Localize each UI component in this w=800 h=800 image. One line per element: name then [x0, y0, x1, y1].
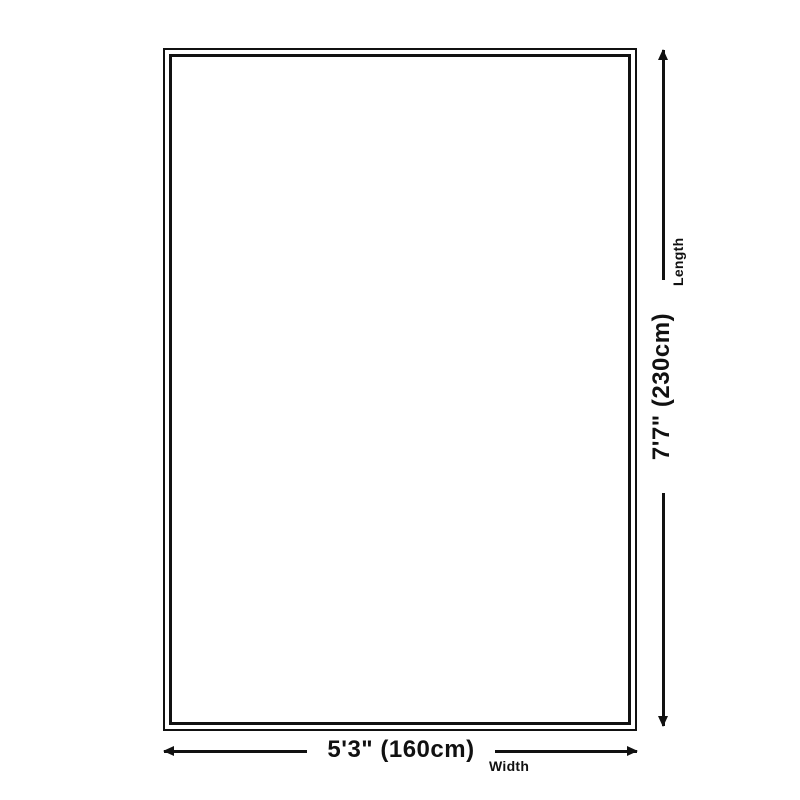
length-arrow-bottom-segment — [662, 493, 665, 726]
width-value: 5'3" (160cm) — [327, 738, 474, 764]
width-arrow-left-segment — [164, 750, 307, 753]
width-dimension: 5'3" (160cm) Width — [164, 736, 637, 766]
width-arrow-right-segment: Width — [495, 750, 637, 753]
rug-outline — [163, 48, 637, 731]
arrow-right-icon — [627, 746, 638, 756]
rug-inner-outline — [169, 54, 631, 725]
length-value: 7'7" (230cm) — [650, 313, 676, 460]
arrow-left-icon — [163, 746, 174, 756]
arrow-up-icon — [658, 49, 668, 60]
width-label: Width — [489, 758, 529, 774]
length-arrow-top-segment: Length — [662, 50, 665, 280]
length-dimension: 7'7" (230cm) Length — [648, 50, 678, 726]
length-label: Length — [670, 238, 686, 286]
arrow-down-icon — [658, 716, 668, 727]
rug-size-diagram: 5'3" (160cm) Width 7'7" (230cm) Length — [0, 0, 800, 800]
